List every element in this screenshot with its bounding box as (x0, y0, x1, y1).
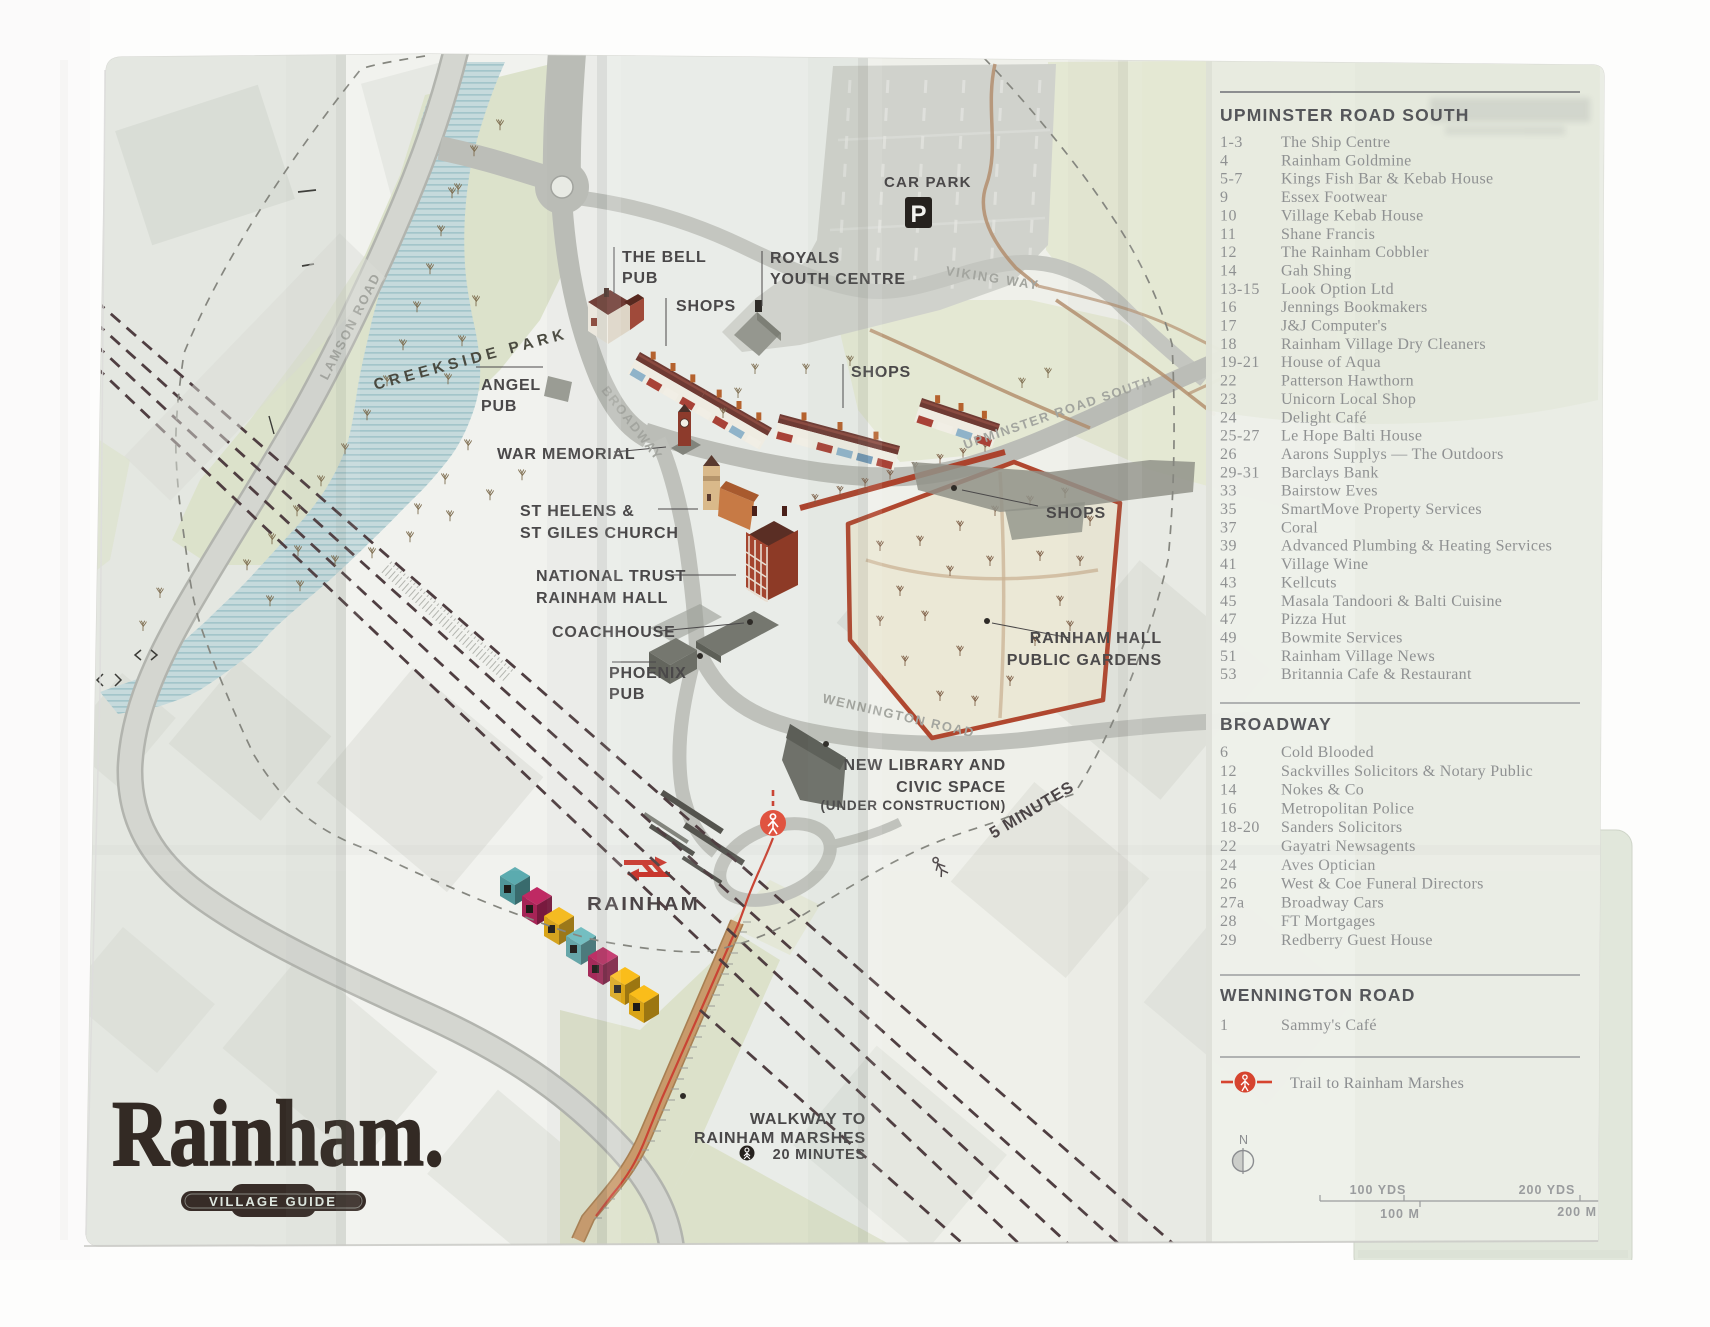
svg-text:Village Wine: Village Wine (1281, 556, 1368, 573)
svg-text:14: 14 (1220, 262, 1237, 279)
svg-text:25-27: 25-27 (1220, 428, 1260, 445)
svg-text:18-20: 18-20 (1220, 819, 1260, 836)
svg-text:23: 23 (1220, 391, 1237, 408)
svg-text:Metropolitan Police: Metropolitan Police (1281, 800, 1414, 817)
svg-text:Kings Fish Bar & Kebab House: Kings Fish Bar & Kebab House (1281, 171, 1493, 188)
svg-text:43: 43 (1220, 574, 1237, 591)
svg-text:Trail to Rainham Marshes: Trail to Rainham Marshes (1290, 1075, 1464, 1092)
svg-text:29: 29 (1220, 932, 1237, 949)
svg-text:Rainham Goldmine: Rainham Goldmine (1281, 152, 1412, 169)
svg-text:Look Option Ltd: Look Option Ltd (1281, 281, 1394, 298)
svg-text:PUB: PUB (481, 398, 517, 415)
svg-text:16: 16 (1220, 800, 1237, 817)
svg-text:26: 26 (1220, 446, 1237, 463)
svg-text:Village Kebab House: Village Kebab House (1281, 207, 1423, 224)
svg-text:200 M: 200 M (1557, 1205, 1597, 1219)
svg-text:ANGEL: ANGEL (481, 377, 541, 394)
svg-text:35: 35 (1220, 501, 1237, 518)
svg-text:Advanced Plumbing & Heating Se: Advanced Plumbing & Heating Services (1281, 538, 1552, 555)
svg-text:53: 53 (1220, 666, 1237, 683)
svg-text:CIVIC SPACE: CIVIC SPACE (896, 779, 1006, 796)
svg-text:100 YDS: 100 YDS (1350, 1183, 1407, 1197)
svg-text:Gah Shing: Gah Shing (1281, 262, 1352, 279)
svg-text:Sackvilles Solicitors & Notary: Sackvilles Solicitors & Notary Public (1281, 763, 1533, 780)
svg-text:11: 11 (1220, 226, 1236, 243)
svg-text:18: 18 (1220, 336, 1237, 353)
svg-text:29-31: 29-31 (1220, 464, 1260, 481)
svg-text:24: 24 (1220, 409, 1237, 426)
svg-text:28: 28 (1220, 913, 1237, 930)
svg-text:Coral: Coral (1281, 519, 1318, 536)
svg-text:Sammy's Café: Sammy's Café (1281, 1017, 1377, 1034)
svg-text:10: 10 (1220, 207, 1237, 224)
svg-text:9: 9 (1220, 189, 1229, 206)
svg-text:Masala Tandoori & Balti Cuisin: Masala Tandoori & Balti Cuisine (1281, 593, 1502, 610)
svg-text:Barclays Bank: Barclays Bank (1281, 464, 1379, 481)
svg-text:The Ship Centre: The Ship Centre (1281, 134, 1390, 151)
svg-text:1-3: 1-3 (1220, 134, 1243, 151)
svg-text:37: 37 (1220, 519, 1237, 536)
svg-text:Essex Footwear: Essex Footwear (1281, 189, 1387, 206)
svg-text:Kellcuts: Kellcuts (1281, 574, 1337, 591)
svg-text:16: 16 (1220, 299, 1237, 316)
svg-text:Britannia Cafe & Restaurant: Britannia Cafe & Restaurant (1281, 666, 1472, 683)
svg-text:Bairstow Eves: Bairstow Eves (1281, 483, 1378, 500)
svg-text:100 M: 100 M (1380, 1207, 1420, 1221)
svg-text:200 YDS: 200 YDS (1519, 1183, 1576, 1197)
svg-text:PUB: PUB (622, 270, 658, 287)
svg-text:Unicorn Local Shop: Unicorn Local Shop (1281, 391, 1416, 408)
svg-text:Aarons Supplys — The Outdoors: Aarons Supplys — The Outdoors (1281, 446, 1504, 463)
svg-text:41: 41 (1220, 556, 1237, 573)
svg-text:Broadway Cars: Broadway Cars (1281, 894, 1384, 911)
svg-text:Patterson Hawthorn: Patterson Hawthorn (1281, 373, 1414, 390)
svg-text:19-21: 19-21 (1220, 354, 1260, 371)
svg-text:SHOPS: SHOPS (676, 298, 736, 315)
svg-text:14: 14 (1220, 782, 1237, 799)
svg-text:CAR PARK: CAR PARK (884, 174, 972, 191)
svg-text:6: 6 (1220, 744, 1229, 761)
svg-text:Nokes & Co: Nokes & Co (1281, 782, 1364, 799)
svg-text:5-7: 5-7 (1220, 171, 1243, 188)
svg-text:47: 47 (1220, 611, 1237, 628)
svg-text:49: 49 (1220, 629, 1237, 646)
svg-text:West & Coe Funeral Directors: West & Coe Funeral Directors (1281, 876, 1484, 893)
svg-text:Pizza Hut: Pizza Hut (1281, 611, 1347, 628)
svg-text:Le Hope Balti House: Le Hope Balti House (1281, 428, 1422, 445)
svg-text:39: 39 (1220, 538, 1237, 555)
svg-text:Redberry Guest House: Redberry Guest House (1281, 932, 1433, 949)
svg-text:Rainham Village News: Rainham Village News (1281, 648, 1435, 665)
svg-text:45: 45 (1220, 593, 1237, 610)
svg-text:The Rainham Cobbler: The Rainham Cobbler (1281, 244, 1429, 261)
svg-text:FT Mortgages: FT Mortgages (1281, 913, 1375, 930)
svg-text:22: 22 (1220, 373, 1237, 390)
svg-text:Rainham.: Rainham. (112, 1082, 444, 1186)
svg-text:4: 4 (1220, 152, 1229, 169)
svg-text:Sanders Solicitors: Sanders Solicitors (1281, 819, 1402, 836)
svg-text:12: 12 (1220, 244, 1237, 261)
svg-text:Jennings Bookmakers: Jennings Bookmakers (1281, 299, 1428, 316)
svg-text:UPMINSTER ROAD SOUTH: UPMINSTER ROAD SOUTH (1220, 105, 1470, 125)
svg-text:51: 51 (1220, 648, 1237, 665)
svg-text:Shane Francis: Shane Francis (1281, 226, 1375, 243)
svg-text:Bowmite Services: Bowmite Services (1281, 629, 1403, 646)
svg-text:26: 26 (1220, 876, 1237, 893)
svg-text:House of Aqua: House of Aqua (1281, 354, 1381, 371)
svg-text:J&J Computer's: J&J Computer's (1281, 318, 1387, 335)
svg-text:27a: 27a (1220, 894, 1245, 911)
svg-text:12: 12 (1220, 763, 1237, 780)
svg-text:WENNINGTON ROAD: WENNINGTON ROAD (1220, 985, 1416, 1005)
svg-text:Rainham Village Dry Cleaners: Rainham Village Dry Cleaners (1281, 336, 1486, 353)
svg-text:THE BELL: THE BELL (622, 249, 707, 266)
svg-text:1: 1 (1220, 1017, 1229, 1034)
svg-text:SmartMove Property Services: SmartMove Property Services (1281, 501, 1482, 518)
svg-text:Cold Blooded: Cold Blooded (1281, 744, 1374, 761)
svg-text:P: P (910, 201, 926, 228)
svg-text:BROADWAY: BROADWAY (1220, 714, 1332, 734)
svg-text:N: N (1239, 1133, 1248, 1147)
svg-text:33: 33 (1220, 483, 1237, 500)
svg-text:Delight Café: Delight Café (1281, 409, 1367, 426)
svg-text:13-15: 13-15 (1220, 281, 1260, 298)
svg-text:17: 17 (1220, 318, 1237, 335)
